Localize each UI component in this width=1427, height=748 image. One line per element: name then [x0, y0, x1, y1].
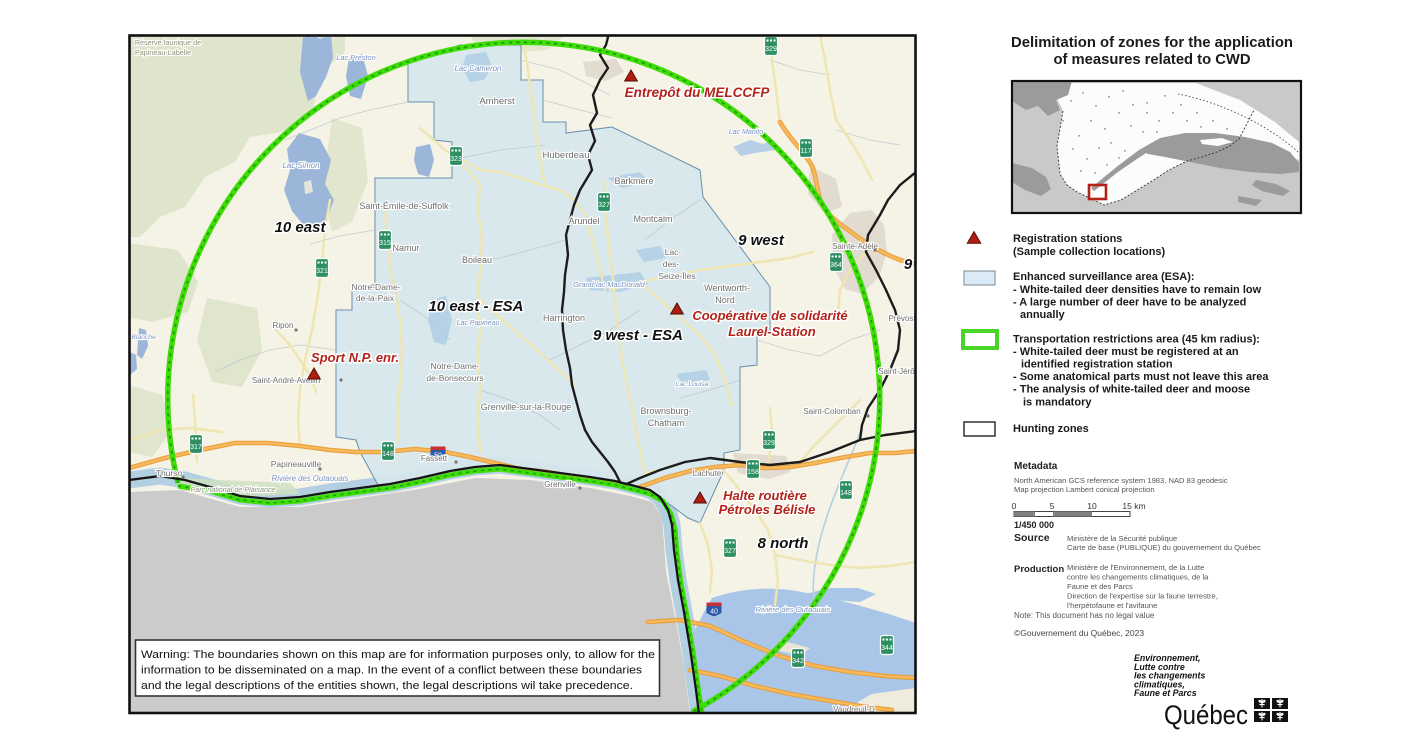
svg-text:Arundel: Arundel [568, 216, 599, 226]
svg-text:Seize-Îles: Seize-Îles [658, 271, 695, 281]
svg-text:Chatham: Chatham [648, 418, 685, 428]
svg-text:323: 323 [450, 156, 462, 163]
svg-text:Réserve faunique de: Réserve faunique de [135, 38, 201, 47]
svg-text:Enhanced surveillance area (ES: Enhanced surveillance area (ESA): [1013, 271, 1195, 283]
svg-text:des-: des- [663, 259, 680, 269]
svg-text:- The analysis of white-tailed: - The analysis of white-tailed deer and … [1013, 384, 1250, 396]
svg-text:of measures related to CWD: of measures related to CWD [1054, 51, 1251, 68]
svg-text:- A large number of deer have: - A large number of deer have to be anal… [1013, 297, 1246, 309]
svg-text:Boileau: Boileau [462, 255, 492, 265]
svg-text:8 north: 8 north [758, 535, 809, 552]
svg-text:Note: This document has no leg: Note: This document has no legal value [1014, 611, 1155, 620]
svg-text:342: 342 [792, 658, 804, 665]
svg-text:329: 329 [765, 46, 777, 53]
svg-text:327: 327 [598, 202, 610, 209]
svg-text:Montcalm: Montcalm [633, 214, 672, 224]
svg-text:315: 315 [379, 240, 391, 247]
svg-text:Lac Cameron: Lac Cameron [455, 64, 502, 73]
svg-text:Faune et des Parcs: Faune et des Parcs [1067, 582, 1133, 591]
svg-text:Harrington: Harrington [543, 313, 585, 323]
svg-text:117: 117 [800, 148, 811, 155]
svg-text:Lac Louisa: Lac Louisa [676, 381, 709, 388]
svg-text:- Some anatomical parts must n: - Some anatomical parts must not leave t… [1013, 371, 1269, 383]
svg-text:Laurel-Station: Laurel-Station [728, 324, 815, 339]
svg-text:Grenville: Grenville [544, 480, 576, 489]
svg-text:Rivière des Outaouais: Rivière des Outaouais [272, 474, 349, 483]
svg-text:321: 321 [316, 268, 328, 275]
svg-text:Metadata: Metadata [1014, 461, 1058, 472]
svg-text:Lac Manito: Lac Manito [729, 129, 763, 136]
svg-text:Brownsburg-: Brownsburg- [640, 406, 691, 416]
svg-text:344: 344 [881, 645, 893, 652]
svg-text:10: 10 [1087, 501, 1097, 511]
svg-text:Amherst: Amherst [479, 96, 515, 107]
svg-text:9 west: 9 west [738, 232, 785, 249]
svg-text:Transportation restrictions ar: Transportation restrictions area (45 km … [1013, 334, 1260, 346]
svg-text:de-la-Paix: de-la-Paix [356, 293, 395, 303]
svg-text:0: 0 [1012, 501, 1017, 511]
svg-text:Québec: Québec [1164, 700, 1248, 730]
svg-text:Map projection Lambert conical: Map projection Lambert conical projectio… [1014, 485, 1155, 494]
svg-text:Papineauville: Papineauville [271, 459, 322, 469]
svg-text:Papineau-Labelle: Papineau-Labelle [135, 48, 191, 57]
svg-text:(Sample collection locations): (Sample collection locations) [1013, 246, 1166, 258]
svg-text:Lac Papineau: Lac Papineau [457, 320, 500, 327]
svg-text:contre les changements climati: contre les changements climatiques, de l… [1067, 573, 1209, 582]
svg-text:317: 317 [190, 444, 202, 451]
svg-text:de-Bonsecours: de-Bonsecours [426, 373, 483, 383]
svg-text:Wentworth-: Wentworth- [704, 283, 750, 293]
svg-text:1/450 000: 1/450 000 [1014, 520, 1054, 530]
svg-text:Ministère de l'Environnement,: Ministère de l'Environnement, de la Lutt… [1067, 563, 1204, 572]
svg-text:Registration stations: Registration stations [1013, 233, 1122, 245]
svg-text:148: 148 [840, 490, 852, 497]
svg-text:Sainte-Adèle: Sainte-Adèle [832, 242, 878, 251]
svg-text:- White-tailed deer densities: - White-tailed deer densities have to re… [1013, 284, 1262, 296]
svg-text:327: 327 [724, 548, 736, 555]
svg-text:Carte de base (PUBLIQUE) du go: Carte de base (PUBLIQUE) du gouvernement… [1067, 543, 1261, 552]
svg-text:Lac Preston: Lac Preston [336, 53, 375, 62]
svg-text:Prévost: Prévost [888, 314, 916, 323]
svg-text:Direction de l'expertise sur l: Direction de l'expertise sur la faune te… [1067, 592, 1218, 601]
svg-text:Source: Source [1014, 532, 1050, 544]
svg-text:9 west - ESA: 9 west - ESA [593, 327, 683, 344]
svg-text:40: 40 [710, 609, 718, 616]
svg-text:- White-tailed deer must be re: - White-tailed deer must be registered a… [1013, 346, 1239, 358]
svg-text:Lachute: Lachute [693, 469, 722, 478]
svg-text:Ripon: Ripon [273, 321, 294, 330]
svg-text:Lac-: Lac- [665, 247, 682, 257]
svg-text:Fassett: Fassett [421, 454, 448, 463]
svg-text:Namur: Namur [392, 243, 419, 253]
svg-text:Saint-Émile-de-Suffolk: Saint-Émile-de-Suffolk [359, 201, 449, 211]
svg-text:364: 364 [830, 262, 842, 269]
svg-text:Ministère de la Sécurité publi: Ministère de la Sécurité publique [1067, 534, 1177, 543]
svg-text:Entrepôt du MELCCFP: Entrepôt du MELCCFP [625, 85, 771, 100]
svg-text:Warning: The boundaries shown: Warning: The boundaries shown on this ma… [141, 649, 655, 661]
svg-text:Parc national de Plaisance: Parc national de Plaisance [190, 485, 275, 494]
svg-text:10 east - ESA: 10 east - ESA [428, 298, 523, 315]
svg-text:©Gouvernement du Québec, 2023: ©Gouvernement du Québec, 2023 [1014, 628, 1144, 638]
svg-text:Grenville-sur-la-Rouge: Grenville-sur-la-Rouge [481, 402, 572, 412]
svg-text:Delimitation of zones for the: Delimitation of zones for the applicatio… [1011, 34, 1293, 51]
svg-text:Notre-Dame-: Notre-Dame- [430, 361, 479, 371]
svg-text:Halte routière: Halte routière [723, 488, 807, 503]
svg-text:5: 5 [1050, 501, 1055, 511]
svg-text:Thurso: Thurso [156, 468, 183, 478]
svg-text:information to be disseminated: information to be disseminated on a map.… [141, 664, 642, 676]
svg-text:Saint-Colomban: Saint-Colomban [803, 407, 860, 416]
svg-text:North American GCS reference s: North American GCS reference system 1983… [1014, 476, 1228, 485]
svg-text:is mandatory: is mandatory [1023, 397, 1092, 409]
svg-text:Nord: Nord [715, 295, 735, 305]
svg-text:Grand lac MacDonald: Grand lac MacDonald [573, 280, 645, 289]
svg-text:and the legal descriptions of: and the legal descriptions of the entiti… [141, 680, 633, 692]
svg-text:l'herpétofaune et l'avifaune: l'herpétofaune et l'avifaune [1067, 601, 1157, 610]
svg-text:Sport N.P. enr.: Sport N.P. enr. [311, 350, 399, 365]
svg-text:Coopérative de solidarité: Coopérative de solidarité [692, 308, 847, 323]
svg-text:Production: Production [1014, 564, 1064, 575]
svg-text:identified registration statio: identified registration station [1021, 359, 1173, 371]
svg-text:Notre-Dame-: Notre-Dame- [351, 282, 400, 292]
svg-text:15 km: 15 km [1122, 501, 1145, 511]
svg-text:158: 158 [747, 469, 759, 476]
svg-text:Pétroles Bélisle: Pétroles Bélisle [719, 502, 816, 517]
svg-text:Barkmere: Barkmere [614, 176, 653, 186]
svg-text:10 east: 10 east [275, 219, 327, 236]
svg-text:Faune et Parcs: Faune et Parcs [1134, 688, 1197, 698]
svg-text:Lac Simon: Lac Simon [283, 161, 320, 170]
svg-text:329: 329 [763, 440, 775, 447]
svg-text:9: 9 [904, 256, 913, 273]
svg-text:Hunting zones: Hunting zones [1013, 423, 1089, 435]
svg-text:Huberdeau: Huberdeau [542, 150, 589, 161]
svg-text:annually: annually [1020, 309, 1066, 321]
svg-text:Rivière des Outaouais: Rivière des Outaouais [756, 605, 831, 614]
svg-text:148: 148 [382, 451, 394, 458]
